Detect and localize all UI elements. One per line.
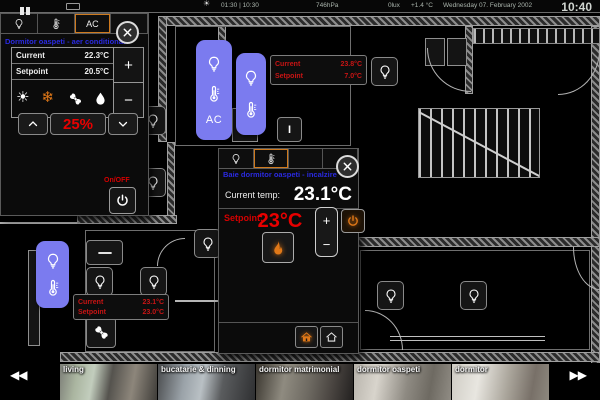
close-button[interactable] [116, 21, 139, 44]
fan-icon [67, 90, 84, 108]
wall-segment [591, 26, 600, 366]
thermometer-icon [205, 84, 223, 104]
camera-label: dormitor oaspeti [357, 365, 420, 374]
pause-icon[interactable] [20, 2, 32, 10]
camera-thumb-kitchen[interactable]: bucatarie & dinning [158, 364, 255, 400]
camera-strip: ◀◀ living bucatarie & dinning dormitor m… [0, 363, 600, 400]
bulb-icon [205, 54, 223, 74]
light-button[interactable] [86, 267, 113, 296]
heating-control-panel: Baie dormitor oaspeti - incalzire Curren… [218, 148, 359, 354]
current-temp-label: Current temp: [225, 190, 280, 200]
light-button[interactable] [460, 281, 487, 310]
thermometer-icon [242, 100, 260, 120]
setpoint-stepper: + − [114, 48, 143, 117]
room-line [175, 300, 220, 302]
camera-label: bucatarie & dinning [161, 365, 236, 374]
wall-segment [158, 16, 600, 26]
clock-display: 10:40 [561, 0, 592, 14]
setpoint-stepper[interactable]: + − [315, 207, 338, 257]
switch-label: I [288, 124, 291, 136]
pressure-reading: 746hPa [316, 2, 338, 9]
fan-speed-up-button[interactable] [18, 113, 48, 135]
setpoint-increase[interactable]: + [316, 208, 337, 232]
date-display: Wednesday 07. February 2002 [443, 2, 532, 9]
tab-label: AC [86, 19, 99, 29]
camera-label: dormitor [455, 365, 488, 374]
house-filled-icon [299, 330, 314, 344]
camera-label: living [63, 365, 84, 374]
staircase [418, 108, 540, 178]
app-root: ☀ 01:30 | 10:30 746hPa 0lux +1.4 °C Wedn… [0, 0, 600, 400]
display-icon[interactable] [66, 3, 80, 10]
panel-title: Dormitor oaspeti - aer conditionat [5, 37, 125, 46]
close-button[interactable] [336, 155, 359, 178]
dash-icon [97, 249, 113, 257]
bulb-icon [466, 287, 482, 305]
info-label: Current [78, 299, 103, 306]
ac-mode-row: ☀ ❄ [12, 80, 113, 117]
bulb-icon [230, 152, 242, 166]
power-icon [346, 214, 360, 228]
setpoint-decrease-button[interactable]: − [114, 83, 143, 117]
sun-icon: ☀ [203, 0, 213, 10]
current-temp-value: 23.1°C [294, 184, 352, 206]
bulb-icon [92, 273, 108, 291]
room-info-box: Current23.8°C Setpoint7.0°C [270, 55, 367, 85]
wall-segment [167, 142, 175, 218]
close-icon [342, 161, 353, 172]
tab-lights[interactable] [219, 149, 254, 168]
reading-value: 22.3°C [84, 51, 109, 60]
outside-temperature: +1.4 °C [411, 2, 433, 9]
onoff-label: On/OFF [104, 177, 130, 184]
room-control-button[interactable] [36, 241, 69, 308]
fan-mode-button[interactable] [63, 86, 87, 112]
ac-readings-table: Current22.3°C Setpoint20.5°C ☀ ❄ + − [11, 47, 144, 118]
heating-power-button[interactable] [341, 209, 365, 233]
chevron-up-icon [27, 118, 39, 130]
camera-thumb-guest-bedroom[interactable]: dormitor oaspeti [354, 364, 451, 400]
thermometer-icon [44, 278, 62, 298]
radiator-line [390, 336, 545, 341]
dry-mode-button[interactable] [88, 86, 112, 112]
info-label: Setpoint [275, 73, 303, 80]
status-bar: ☀ 01:30 | 10:30 746hPa 0lux +1.4 °C Wedn… [0, 0, 600, 13]
strip-next-button[interactable]: ▶▶ [570, 368, 586, 382]
reading-label: Setpoint [16, 67, 48, 76]
setpoint-value: 23°C [245, 210, 315, 233]
setpoint-decrease[interactable]: − [316, 232, 337, 256]
light-button[interactable] [140, 267, 167, 296]
flame-icon [269, 238, 287, 258]
tab-heating[interactable] [38, 14, 75, 33]
camera-thumb-master-bedroom[interactable]: dormitor matrimonial [256, 364, 353, 400]
wall-segment [357, 237, 600, 247]
info-value: 23.8°C [341, 61, 362, 68]
drop-icon [92, 90, 109, 108]
tab-heating[interactable] [254, 149, 289, 168]
fan-speed-down-button[interactable] [108, 113, 138, 135]
bulb-icon [242, 68, 260, 88]
fan-speed-value: 25% [50, 113, 106, 135]
close-icon [122, 27, 133, 38]
camera-thumb-living[interactable]: living [60, 364, 157, 400]
fan-speed-row: 25% [18, 113, 138, 135]
ac-control-panel: AC Dormitor oaspeti - aer conditionat Cu… [0, 13, 149, 216]
bulb-icon [146, 273, 162, 291]
sun-icon: ☀ [16, 90, 33, 108]
power-icon [115, 193, 130, 208]
comfort-mode-button[interactable] [295, 326, 318, 348]
fan-button[interactable] [86, 317, 116, 348]
setpoint-increase-button[interactable]: + [114, 48, 143, 83]
off-switch-button[interactable] [86, 240, 123, 265]
info-label: Current [275, 61, 300, 68]
fan-icon [92, 323, 111, 342]
info-value: 7.0°C [344, 73, 362, 80]
info-value: 23.0°C [143, 309, 164, 316]
tab-ac[interactable]: AC [75, 14, 112, 33]
stair-run [473, 28, 600, 44]
camera-thumb-bedroom[interactable]: dormitor [452, 364, 549, 400]
info-label: Setpoint [78, 309, 106, 316]
strip-prev-button[interactable]: ◀◀ [10, 368, 26, 382]
bulb-icon [377, 63, 393, 81]
heat-mode-button[interactable]: ☀ [13, 86, 37, 112]
room-info-box: Current23.1°C Setpoint23.0°C [73, 294, 169, 320]
bulb-icon [13, 17, 25, 31]
camera-label: dormitor matrimonial [259, 365, 339, 374]
room-control-button[interactable] [236, 53, 266, 135]
bulb-icon [200, 235, 216, 253]
heating-active-button[interactable] [262, 232, 294, 263]
room-line [0, 222, 77, 224]
light-button[interactable] [371, 57, 398, 86]
tab-empty [289, 149, 324, 168]
thermometer-icon [265, 152, 277, 166]
chevron-down-icon [117, 118, 129, 130]
ac-power-button[interactable] [109, 187, 136, 214]
eco-mode-button[interactable] [320, 326, 343, 348]
sun-times: 01:30 | 10:30 [221, 2, 259, 9]
snowflake-icon: ❄ [41, 90, 58, 108]
cool-mode-button[interactable]: ❄ [38, 86, 62, 112]
light-button[interactable] [194, 229, 221, 258]
light-button[interactable] [377, 281, 404, 310]
door-arc [427, 48, 471, 92]
bulb-icon [44, 251, 62, 271]
tab-lights[interactable] [1, 14, 38, 33]
current-temp-row: Current temp: 23.1°C [219, 181, 358, 209]
ac-label: AC [206, 114, 222, 126]
on-switch-button[interactable]: I [277, 117, 302, 142]
wall-segment [77, 215, 177, 224]
reading-value: 20.5°C [84, 67, 109, 76]
house-outline-icon [324, 330, 339, 344]
thermometer-icon [50, 17, 62, 31]
bulb-icon [383, 287, 399, 305]
panel-title: Baie dormitor oaspeti - incalzire [223, 170, 337, 179]
lux-reading: 0lux [388, 2, 400, 9]
divider [219, 322, 358, 323]
info-value: 23.1°C [143, 299, 164, 306]
room-control-button[interactable]: AC [196, 40, 232, 140]
reading-label: Current [16, 51, 45, 60]
